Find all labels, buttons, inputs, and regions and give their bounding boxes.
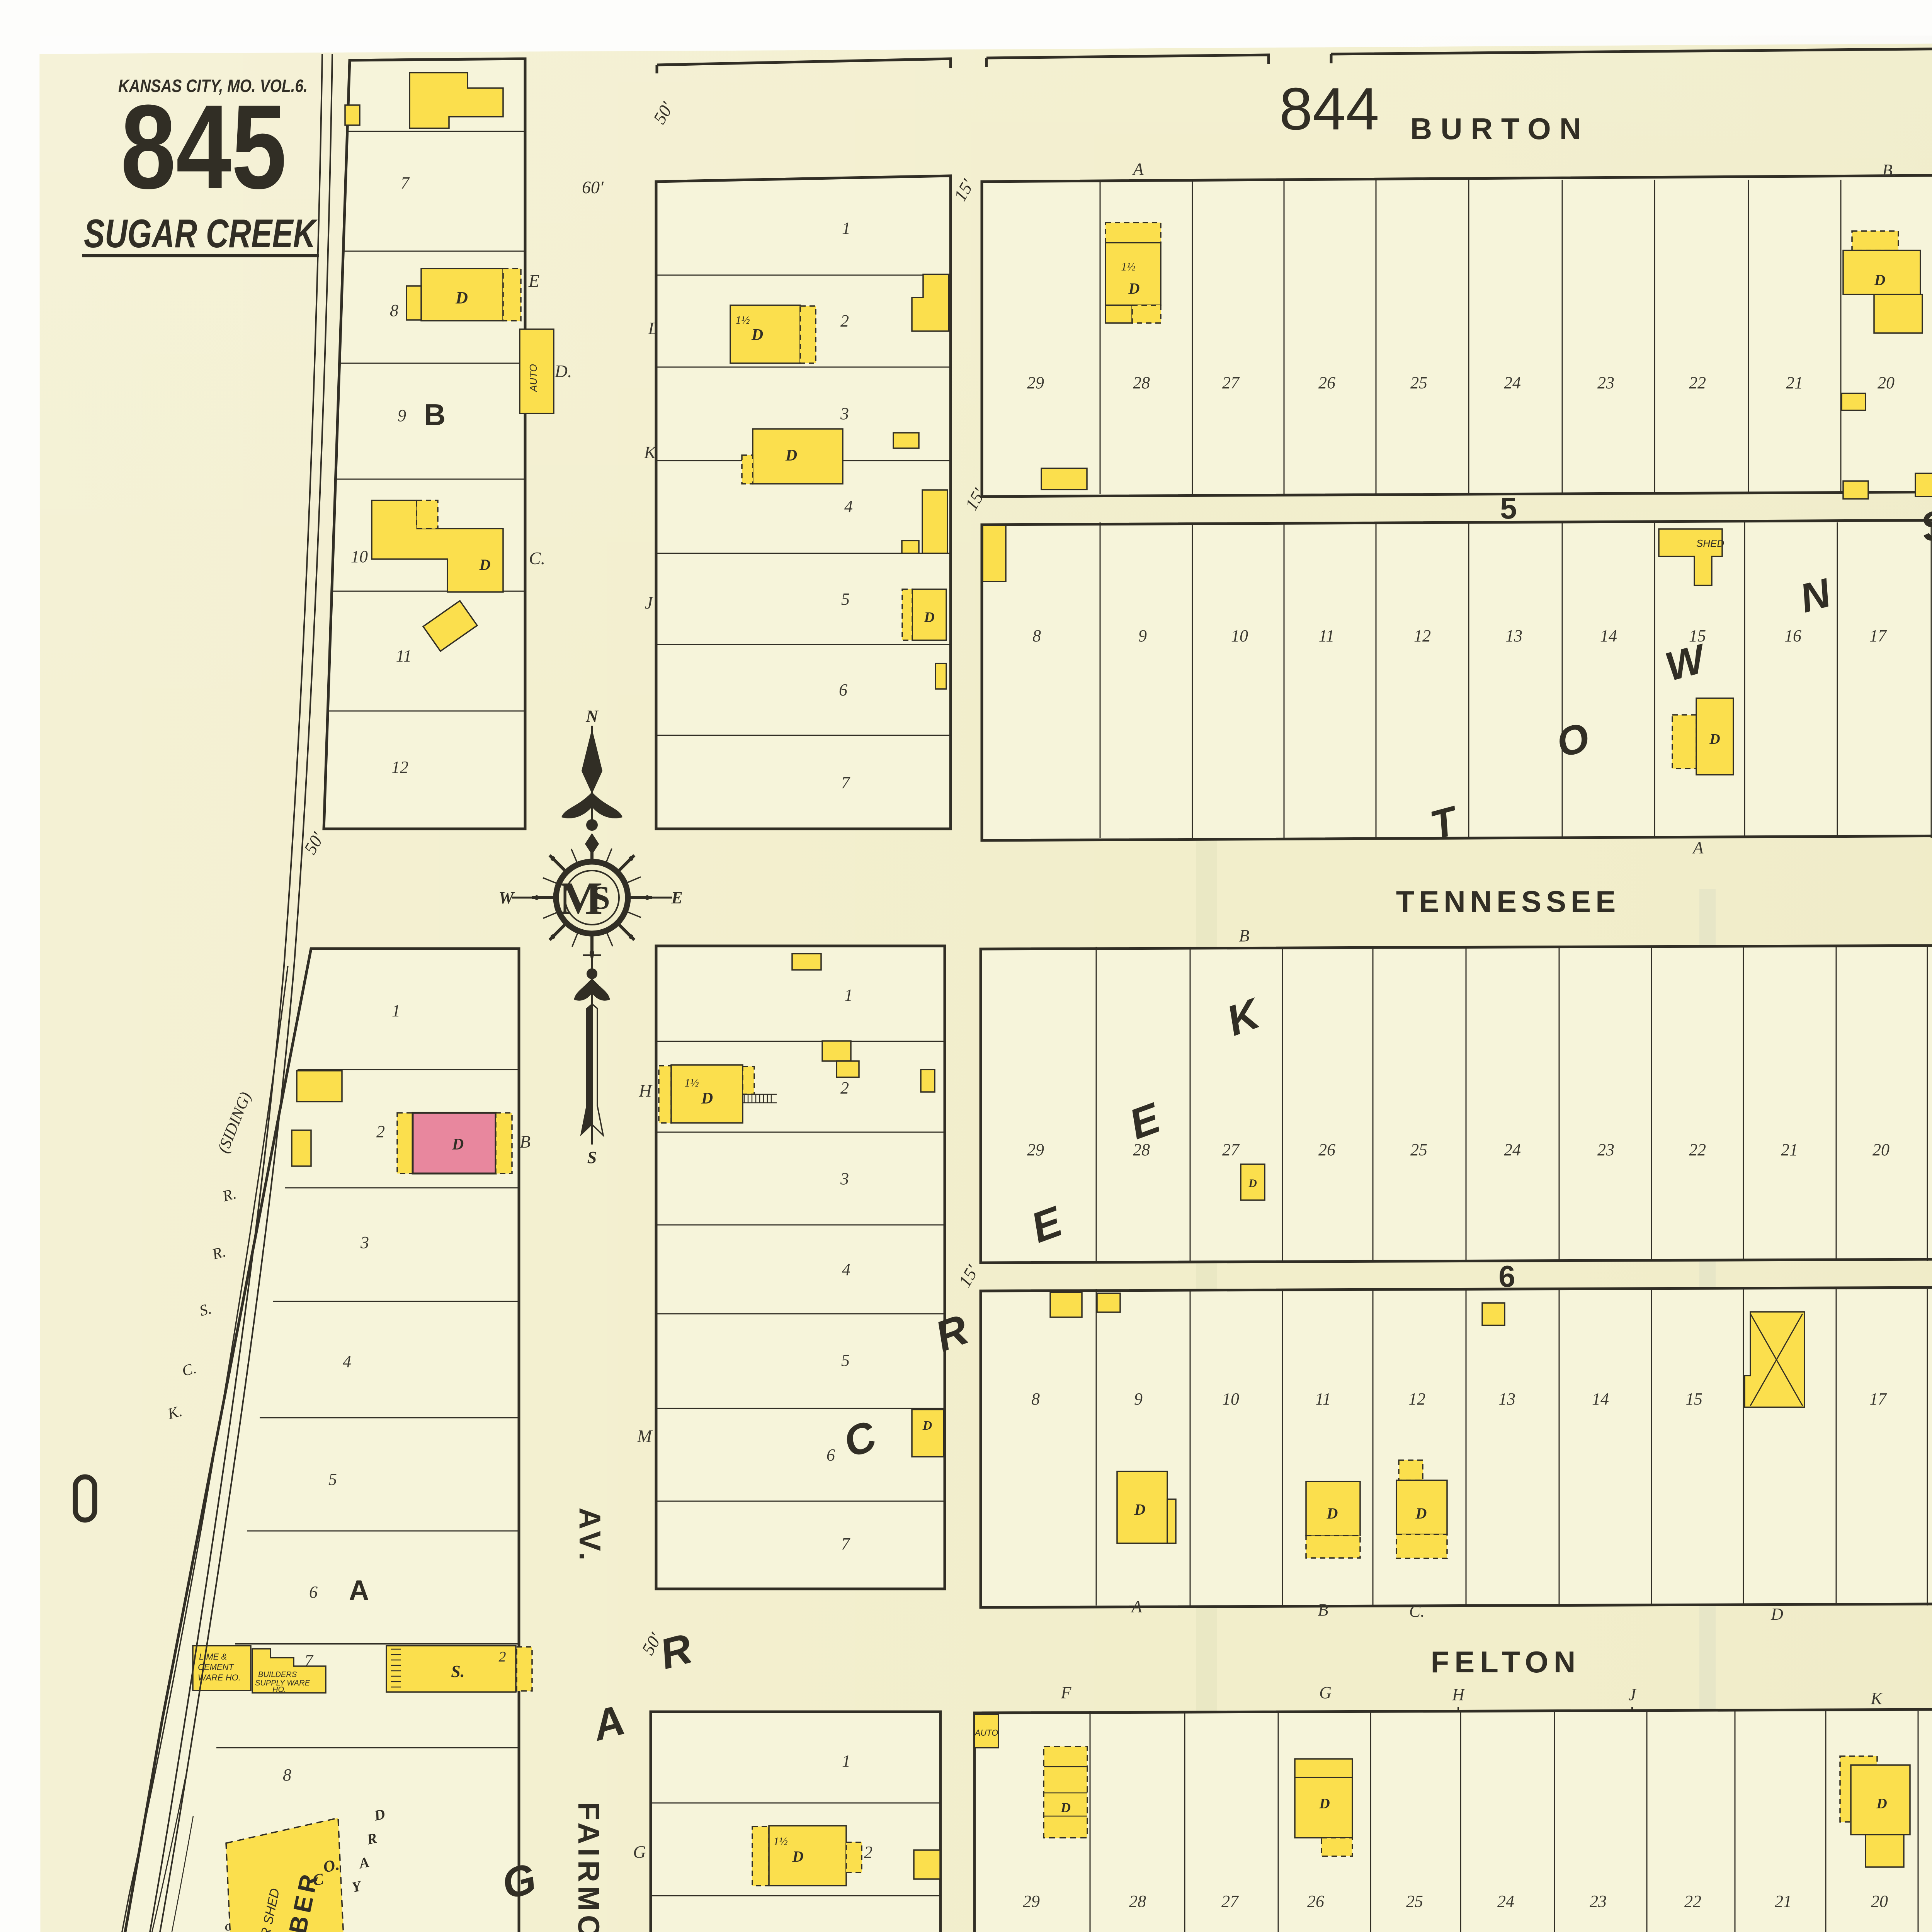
svg-text:26: 26	[1307, 1892, 1324, 1911]
svg-text:845: 845	[121, 80, 287, 214]
svg-text:D: D	[1319, 1796, 1330, 1812]
svg-text:5: 5	[841, 590, 850, 609]
svg-text:20: 20	[1871, 1892, 1888, 1911]
svg-text:3: 3	[360, 1233, 369, 1252]
svg-text:8: 8	[283, 1765, 291, 1784]
svg-text:2: 2	[376, 1122, 385, 1141]
svg-text:28: 28	[1133, 373, 1150, 392]
svg-text:27: 27	[1222, 1140, 1240, 1159]
svg-text:844: 844	[1279, 75, 1379, 142]
svg-text:8: 8	[1031, 1389, 1040, 1408]
svg-text:LIME &: LIME &	[199, 1652, 227, 1662]
svg-text:D: D	[1415, 1505, 1427, 1522]
svg-text:2: 2	[840, 311, 849, 330]
svg-text:60′: 60′	[582, 177, 604, 197]
svg-text:D: D	[455, 288, 468, 307]
svg-text:D: D	[452, 1136, 464, 1153]
svg-text:B.: B.	[1882, 161, 1897, 180]
svg-text:21: 21	[1775, 1892, 1792, 1911]
svg-text:27: 27	[1221, 1892, 1239, 1911]
svg-text:3: 3	[840, 1169, 849, 1188]
svg-text:17: 17	[1869, 626, 1887, 645]
svg-text:S.: S.	[451, 1662, 464, 1681]
svg-text:E: E	[528, 271, 539, 291]
svg-text:28: 28	[1129, 1892, 1146, 1911]
svg-text:G: G	[1319, 1683, 1332, 1702]
svg-text:D: D	[922, 1418, 932, 1433]
svg-text:B: B	[1239, 926, 1250, 945]
svg-text:D: D	[1770, 1605, 1783, 1624]
svg-text:25: 25	[1410, 373, 1427, 392]
svg-text:11: 11	[1315, 1389, 1331, 1408]
svg-text:20: 20	[1878, 373, 1895, 392]
svg-text:25: 25	[1406, 1892, 1423, 1911]
svg-text:A: A	[1131, 1597, 1143, 1616]
svg-text:22: 22	[1684, 1892, 1701, 1911]
svg-text:1: 1	[842, 1752, 850, 1770]
svg-text:BURTON: BURTON	[1410, 112, 1590, 146]
svg-text:FELTON: FELTON	[1431, 1645, 1581, 1679]
svg-text:24: 24	[1497, 1892, 1514, 1911]
svg-text:D: D	[479, 556, 491, 573]
svg-text:24: 24	[1504, 373, 1521, 392]
svg-text:12: 12	[391, 758, 408, 777]
svg-text:H: H	[638, 1081, 653, 1100]
svg-text:9: 9	[1134, 1389, 1143, 1408]
svg-text:J: J	[645, 593, 654, 612]
svg-text:5: 5	[841, 1351, 850, 1370]
svg-text:6: 6	[309, 1583, 318, 1602]
svg-text:29: 29	[1023, 1892, 1040, 1911]
svg-text:2: 2	[840, 1078, 849, 1097]
svg-text:HO.: HO.	[272, 1685, 286, 1694]
svg-text:9: 9	[398, 406, 406, 425]
svg-text:4: 4	[343, 1352, 351, 1371]
svg-text:J: J	[1628, 1685, 1637, 1704]
svg-text:A: A	[1132, 160, 1144, 179]
svg-text:D: D	[1327, 1505, 1338, 1522]
svg-text:10: 10	[1231, 626, 1248, 645]
svg-text:D: D	[1060, 1800, 1071, 1815]
svg-text:23: 23	[1590, 1892, 1607, 1911]
svg-text:1: 1	[844, 986, 853, 1005]
svg-text:11: 11	[396, 646, 412, 665]
svg-text:10: 10	[1222, 1389, 1239, 1408]
svg-text:21: 21	[1781, 1140, 1798, 1159]
svg-text:7: 7	[841, 773, 850, 792]
svg-text:22: 22	[1689, 373, 1706, 392]
svg-text:M: M	[637, 1426, 653, 1446]
svg-text:3: 3	[840, 404, 849, 423]
svg-text:27: 27	[1222, 373, 1240, 392]
svg-text:D: D	[1709, 731, 1720, 747]
svg-text:4: 4	[844, 497, 853, 516]
svg-text:SUGAR CREEK: SUGAR CREEK	[84, 211, 318, 256]
svg-text:10: 10	[351, 547, 368, 566]
svg-text:C.: C.	[1409, 1602, 1425, 1621]
svg-text:1½: 1½	[684, 1077, 699, 1089]
svg-text:14: 14	[1592, 1389, 1609, 1408]
svg-text:15: 15	[1685, 1389, 1702, 1408]
svg-text:A: A	[349, 1575, 369, 1606]
svg-text:8: 8	[1032, 626, 1041, 645]
svg-text:D: D	[1874, 271, 1886, 289]
svg-text:D: D	[1248, 1177, 1257, 1190]
svg-text:B: B	[1318, 1600, 1328, 1619]
svg-text:6: 6	[827, 1446, 835, 1464]
svg-text:D: D	[701, 1090, 713, 1107]
svg-text:26: 26	[1318, 373, 1335, 392]
svg-text:D: D	[792, 1848, 804, 1865]
svg-text:5: 5	[1500, 491, 1517, 525]
svg-text:6: 6	[839, 680, 847, 699]
svg-text:E: E	[671, 888, 682, 907]
svg-text:D: D	[1876, 1796, 1887, 1812]
svg-text:FAIRMOUNT: FAIRMOUNT	[572, 1802, 606, 1932]
svg-text:2: 2	[499, 1649, 506, 1665]
svg-text:K: K	[1870, 1689, 1883, 1708]
svg-text:S: S	[592, 879, 610, 916]
svg-text:20: 20	[1872, 1140, 1889, 1159]
svg-text:TENNESSEE: TENNESSEE	[1396, 884, 1620, 918]
svg-text:29: 29	[1027, 1140, 1044, 1159]
svg-text:1: 1	[842, 219, 850, 238]
svg-text:21: 21	[1786, 373, 1803, 392]
svg-text:2: 2	[864, 1843, 872, 1862]
svg-text:N: N	[585, 707, 599, 726]
svg-text:25: 25	[1410, 1140, 1427, 1159]
svg-text:WARE HO.: WARE HO.	[198, 1673, 241, 1682]
svg-text:D: D	[1134, 1501, 1146, 1518]
svg-text:12: 12	[1414, 626, 1431, 645]
svg-text:7: 7	[401, 173, 410, 192]
svg-text:11: 11	[1319, 626, 1335, 645]
svg-text:24: 24	[1504, 1140, 1521, 1159]
svg-text:B: B	[520, 1132, 531, 1151]
svg-text:D.: D.	[554, 361, 572, 381]
svg-text:D: D	[1128, 280, 1140, 297]
svg-text:8: 8	[390, 301, 398, 320]
svg-text:AV.: AV.	[573, 1507, 607, 1564]
svg-text:26: 26	[1318, 1140, 1335, 1159]
svg-text:S: S	[587, 1148, 597, 1167]
svg-text:4: 4	[842, 1260, 850, 1279]
svg-text:F: F	[1061, 1683, 1072, 1702]
svg-text:AUTO: AUTO	[527, 364, 539, 393]
svg-text:SHED: SHED	[1696, 537, 1724, 549]
svg-text:23: 23	[1597, 373, 1614, 392]
svg-text:D: D	[751, 326, 763, 344]
svg-text:22: 22	[1689, 1140, 1706, 1159]
svg-text:7: 7	[841, 1534, 850, 1553]
svg-text:D: D	[923, 609, 934, 626]
svg-text:9: 9	[1138, 626, 1147, 645]
svg-text:14: 14	[1600, 626, 1617, 645]
svg-text:D: D	[785, 447, 797, 464]
svg-text:17: 17	[1869, 1389, 1887, 1408]
svg-text:12: 12	[1408, 1389, 1425, 1408]
svg-text:1½: 1½	[773, 1835, 788, 1848]
svg-text:16: 16	[1784, 626, 1801, 645]
svg-text:1: 1	[392, 1001, 400, 1020]
svg-text:23: 23	[1597, 1140, 1614, 1159]
svg-text:5: 5	[328, 1470, 337, 1489]
svg-text:13: 13	[1505, 626, 1522, 645]
svg-text:29: 29	[1027, 373, 1044, 392]
svg-text:B: B	[424, 398, 446, 432]
svg-text:G: G	[633, 1842, 646, 1862]
svg-text:AUTO: AUTO	[974, 1728, 998, 1738]
svg-text:13: 13	[1498, 1389, 1515, 1408]
svg-text:A: A	[1692, 838, 1704, 857]
svg-text:1½: 1½	[1121, 260, 1136, 273]
svg-text:W: W	[498, 888, 515, 907]
svg-text:H: H	[1452, 1685, 1465, 1704]
svg-text:1½: 1½	[735, 314, 750, 327]
svg-text:BUILDERS: BUILDERS	[258, 1670, 297, 1679]
svg-text:C.: C.	[529, 548, 545, 568]
